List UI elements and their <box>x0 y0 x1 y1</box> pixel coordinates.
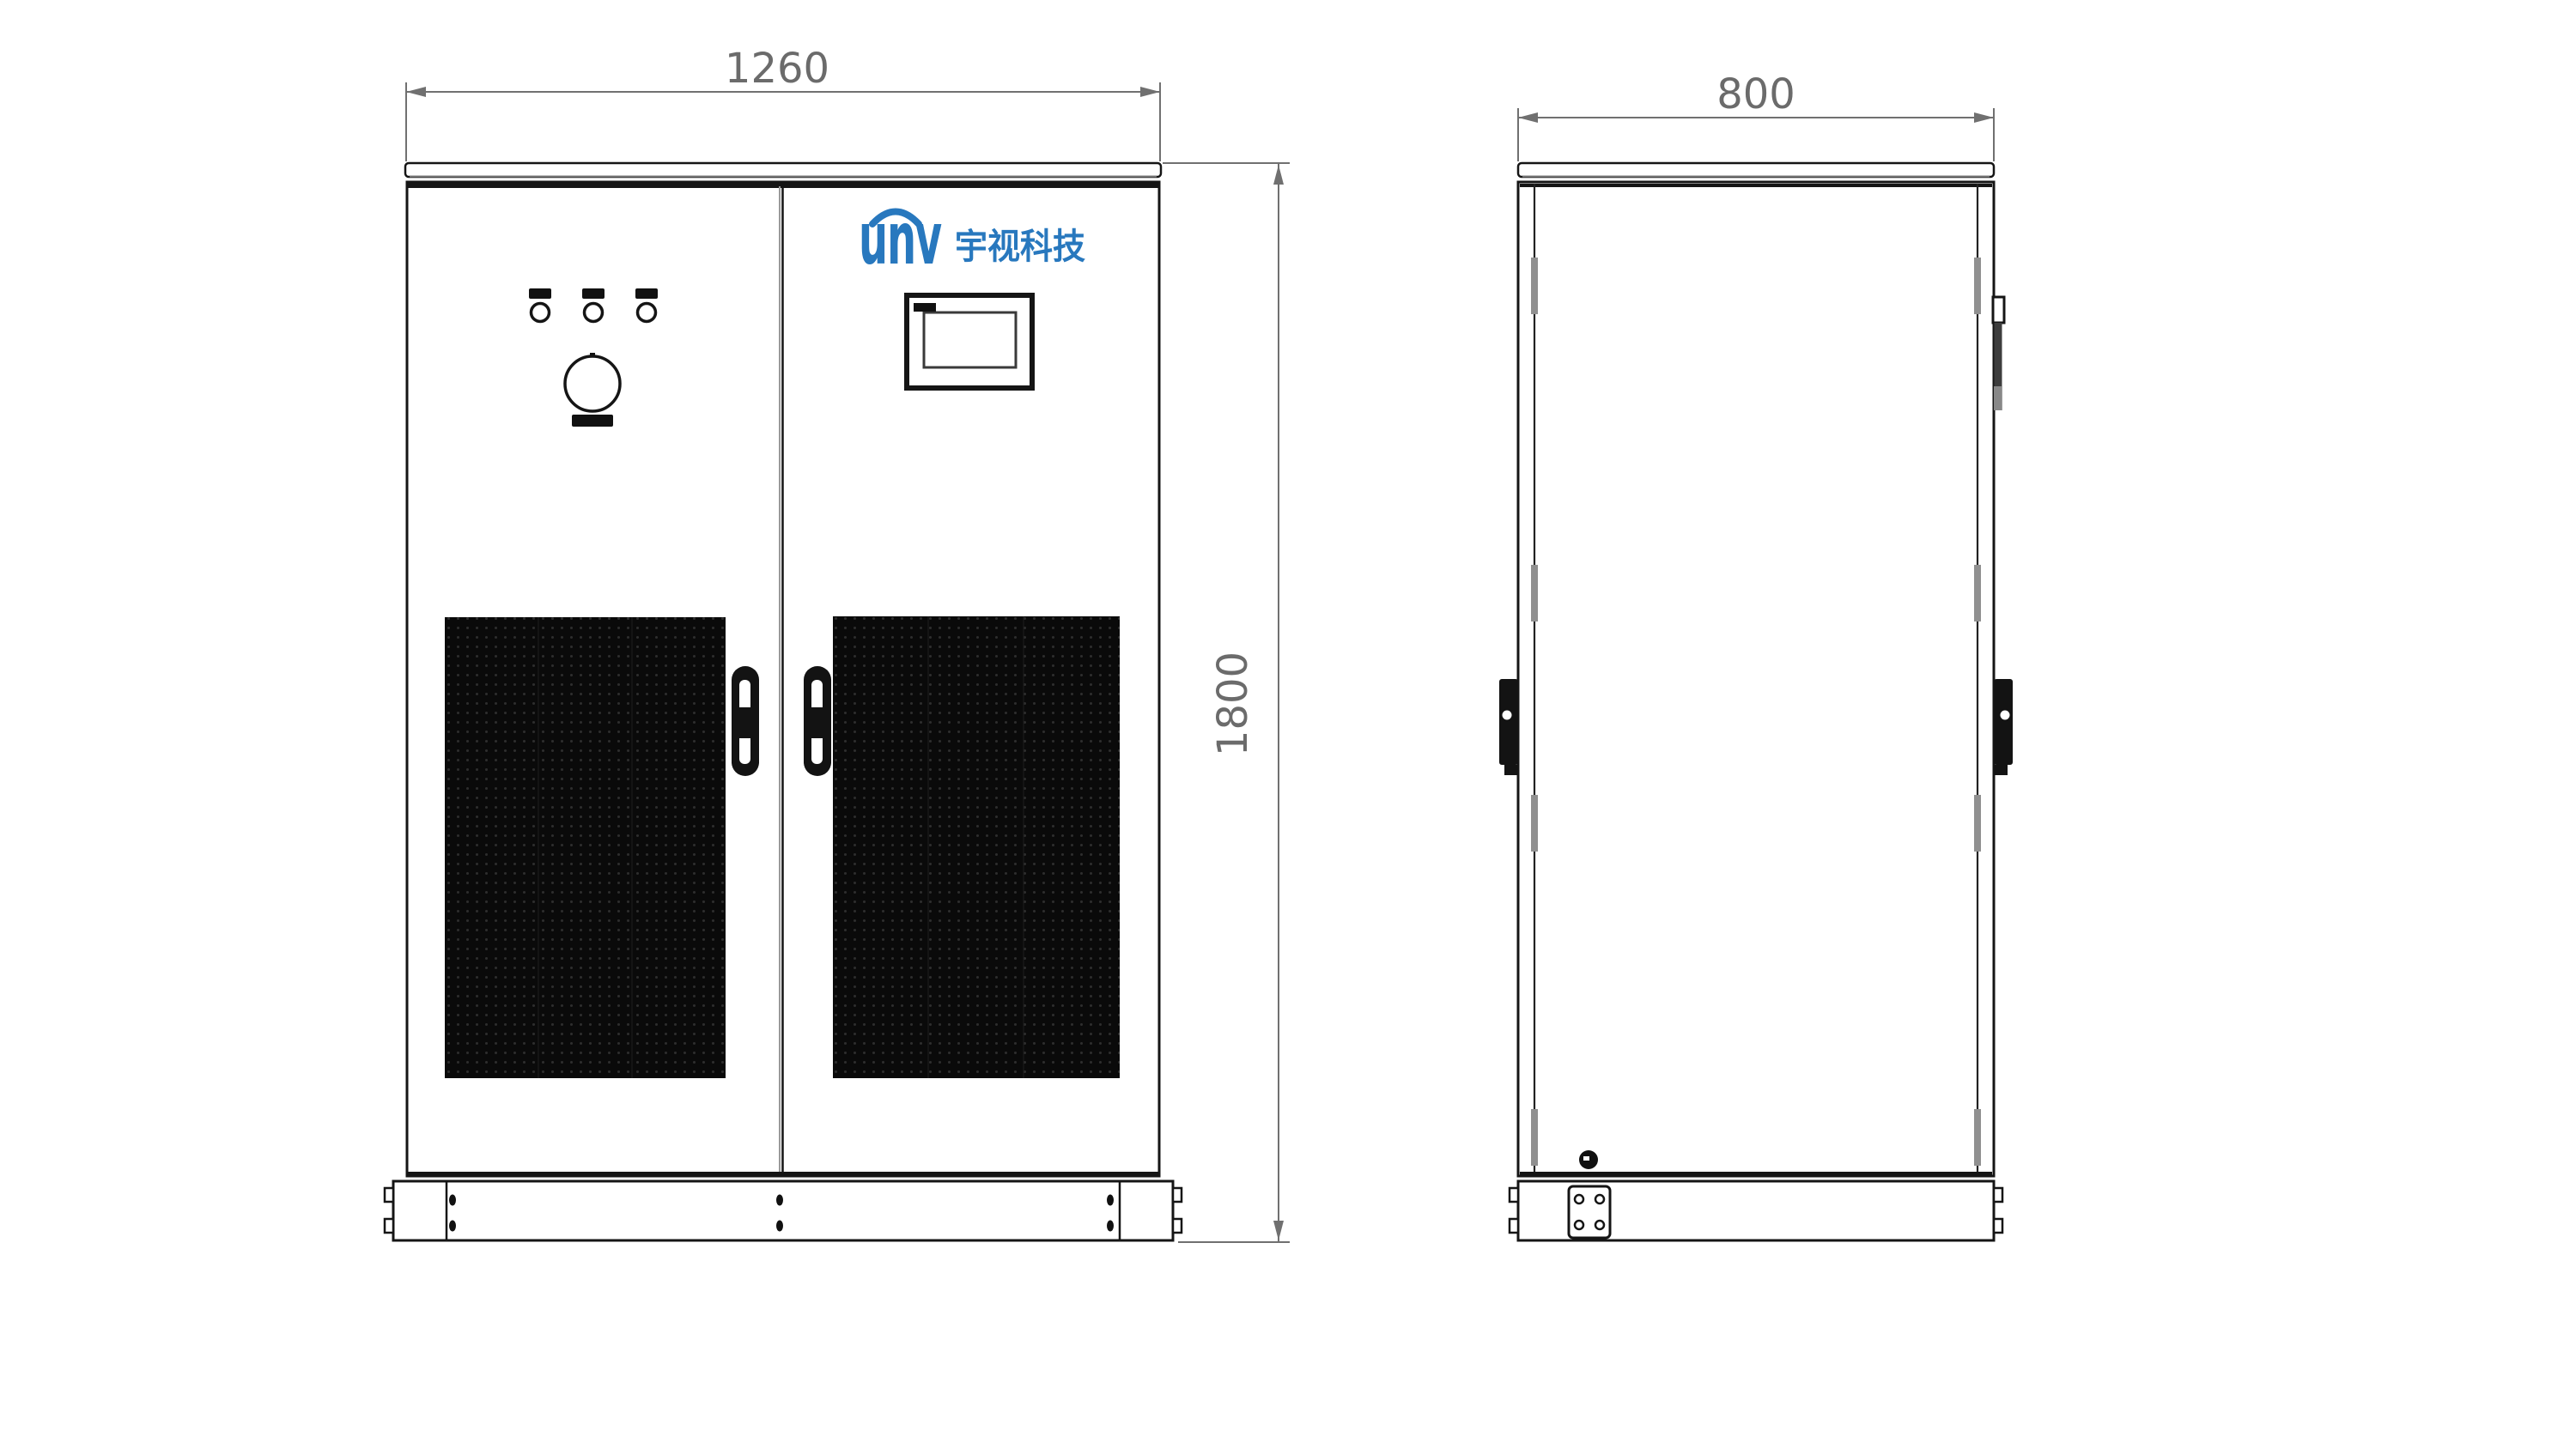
bracket-hole <box>1503 711 1512 720</box>
hinge <box>1531 1109 1538 1166</box>
front-width-value: 1260 <box>725 45 829 93</box>
lock-slit <box>1583 1156 1589 1161</box>
depth-value: 800 <box>1716 70 1795 118</box>
hmi-screen-tag <box>914 303 936 312</box>
base-bolt <box>1107 1195 1114 1206</box>
height-value: 1800 <box>1209 652 1257 756</box>
door-handle-right <box>804 666 831 776</box>
hmi-display <box>907 295 1032 388</box>
arrowhead-left <box>406 87 426 97</box>
foot-tab <box>1510 1219 1518 1233</box>
foot-tab <box>385 1188 393 1202</box>
front-view: 1260 u <box>385 45 1290 1242</box>
vent-grille-left <box>445 617 726 1078</box>
base-bolt <box>1107 1221 1114 1232</box>
hinge <box>1974 795 1981 852</box>
drawing-svg: 1260 u <box>0 0 2576 1449</box>
emergency-stop-label <box>572 415 613 427</box>
indicator-light-3 <box>638 304 656 322</box>
door-handle-left <box>732 666 759 776</box>
arrowhead-right <box>1974 112 1994 123</box>
foot-tab <box>1173 1188 1182 1202</box>
emergency-stop-button <box>565 353 620 427</box>
base-bolt <box>449 1195 456 1206</box>
indicator-label-2 <box>582 288 605 299</box>
logo-company-text: 宇视科技 <box>955 226 1085 267</box>
arrowhead-down <box>1273 1221 1284 1240</box>
anchor-plate <box>1569 1186 1610 1238</box>
handle-latch-left <box>738 707 751 738</box>
arrowhead-right <box>1140 87 1160 97</box>
foot-tab <box>1994 1188 2002 1202</box>
anchor-bolt <box>1575 1195 1583 1203</box>
hinge <box>1974 258 1981 314</box>
side-view: 800 <box>1499 70 2013 1240</box>
vent-grille-right <box>833 616 1120 1078</box>
hmi-screen <box>924 312 1016 367</box>
dimension-front-width <box>406 82 1160 161</box>
anchor-bolt <box>1595 1195 1604 1203</box>
hinge <box>1531 795 1538 852</box>
hinge <box>1974 1109 1981 1166</box>
hinge <box>1531 258 1538 314</box>
hinge <box>1531 565 1538 621</box>
lifting-bracket-left <box>1499 679 1518 775</box>
rod-notch <box>1994 386 2002 410</box>
handle-latch-right <box>811 707 823 738</box>
door-lock <box>1579 1150 1598 1169</box>
arrowhead-left <box>1518 112 1538 123</box>
foot-tab <box>1173 1219 1182 1233</box>
drawing-canvas: 1260 u <box>0 0 2576 1449</box>
front-base <box>385 1181 1182 1240</box>
front-top-cap <box>405 163 1161 177</box>
base-bolt <box>776 1221 783 1232</box>
logo-brand-text: unv <box>859 197 942 281</box>
side-cabinet-body <box>1518 182 1994 1176</box>
arrowhead-up <box>1273 165 1284 185</box>
foot-tab <box>1994 1219 2002 1233</box>
foot-tab <box>1510 1188 1518 1202</box>
indicator-label-1 <box>529 288 551 299</box>
foot-tab <box>385 1219 393 1233</box>
indicator-label-3 <box>635 288 658 299</box>
indicator-light-1 <box>532 304 550 322</box>
anchor-bolt <box>1575 1221 1583 1229</box>
hinge <box>1974 565 1981 621</box>
lifting-bracket-right <box>1994 679 2013 775</box>
base-bolt <box>449 1221 456 1232</box>
side-base <box>1510 1181 2002 1240</box>
base-bolt <box>776 1195 783 1206</box>
bracket-hole <box>2001 711 2010 720</box>
door-rod-lock <box>1993 297 2004 410</box>
indicator-light-2 <box>585 304 603 322</box>
anchor-bolt <box>1595 1221 1604 1229</box>
